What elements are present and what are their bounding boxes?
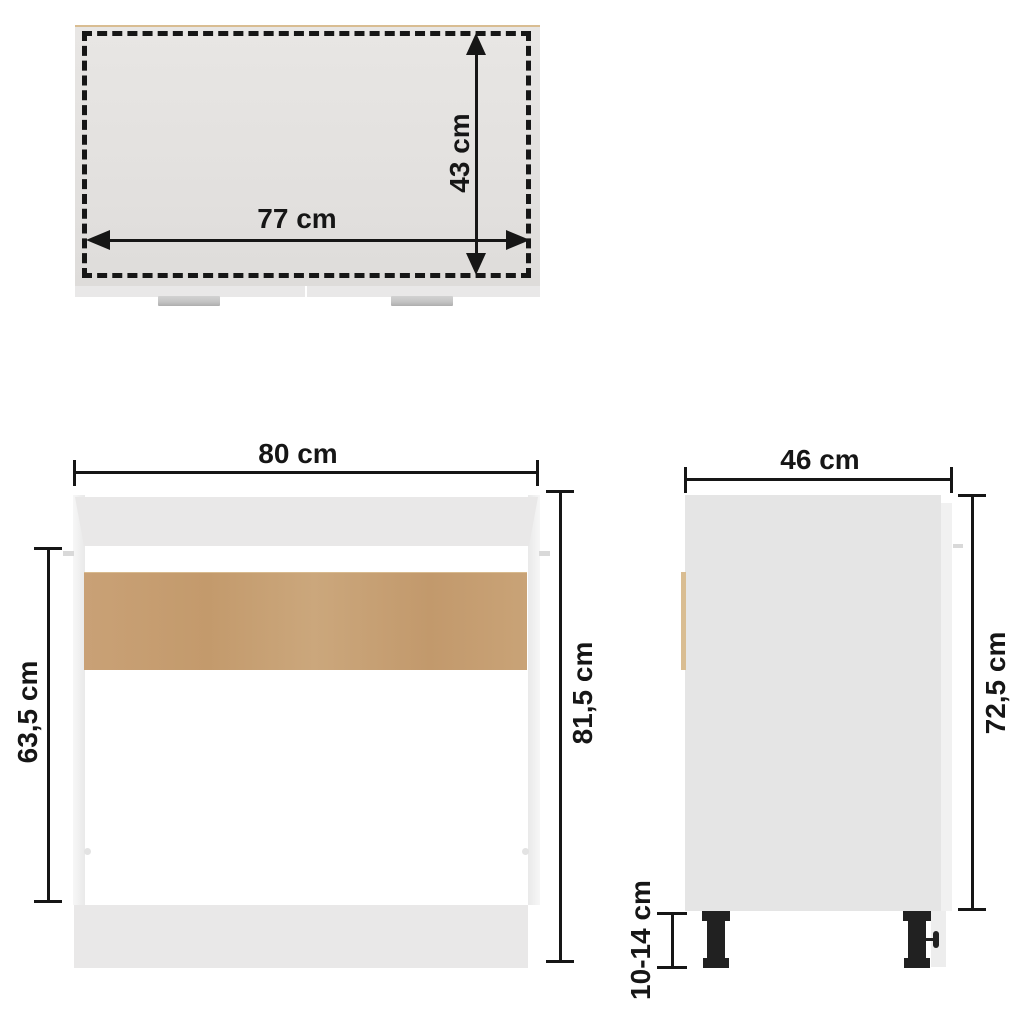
side-wood-panel-edge — [681, 572, 686, 670]
dim-front-width-line — [74, 471, 538, 474]
dim-side-height-tick-top — [958, 494, 986, 497]
front-cabinet-body — [73, 495, 540, 905]
side-cabinet-body — [685, 495, 952, 911]
dim-side-depth-tick-left — [684, 467, 687, 493]
dim-side-legs-line — [671, 914, 674, 968]
dim-side-height-label: 72,5 cm — [981, 598, 1011, 768]
side-back-edge-strip — [941, 503, 952, 911]
dim-side-legs-tick-bottom — [657, 966, 687, 969]
front-left-side-rail — [73, 495, 85, 905]
front-hinge-pin-left — [63, 551, 74, 556]
dim-side-depth-line — [686, 478, 952, 481]
dim-top-width-arrowhead-right — [506, 230, 530, 250]
dim-side-legs-label: 10-14 cm — [626, 855, 656, 1024]
dim-front-inner-height-tick-bottom — [34, 900, 62, 903]
front-plinth — [74, 905, 528, 968]
dim-top-depth-arrowhead-up — [466, 33, 486, 55]
dim-front-height-tick-bottom — [546, 960, 574, 963]
side-hinge-pin — [953, 544, 963, 548]
leg-left-stem — [707, 921, 725, 958]
dim-front-inner-height-line — [47, 549, 50, 903]
top-view-door-split — [305, 286, 307, 297]
dim-front-inner-height-label: 63,5 cm — [13, 632, 43, 792]
dim-top-width-arrowhead-left — [86, 230, 110, 250]
dim-top-depth-label: 43 cm — [445, 73, 475, 233]
top-view-front-band — [75, 286, 540, 297]
dim-front-height-tick-top — [546, 490, 574, 493]
dimension-diagram: 77 cm 43 cm 80 cm — [0, 0, 1024, 1024]
front-wood-panel — [84, 572, 527, 670]
leg-right-foot — [904, 958, 930, 968]
dim-side-height-line — [971, 496, 974, 910]
dim-front-width-tick-left — [73, 460, 76, 486]
dim-top-depth-line — [475, 50, 478, 256]
leg-left-foot — [703, 958, 729, 968]
leg-adjuster-screw-knob — [933, 931, 939, 948]
dim-side-height-tick-bottom — [958, 908, 986, 911]
dim-top-width-line — [104, 239, 510, 242]
side-top-notch — [941, 495, 952, 503]
front-right-side-rail — [528, 495, 540, 905]
leg-right-cap — [903, 911, 931, 921]
door-handle-left — [158, 296, 220, 306]
dim-front-inner-height-tick-top — [34, 547, 62, 550]
dim-side-depth-label: 46 cm — [740, 445, 900, 475]
dim-top-width-label: 77 cm — [217, 204, 377, 234]
front-shelf-pin-right — [522, 848, 529, 855]
dim-front-height-label: 81,5 cm — [568, 608, 598, 778]
front-shelf-pin-left — [84, 848, 91, 855]
dim-top-depth-arrowhead-down — [466, 253, 486, 275]
leg-right-stem — [908, 921, 926, 958]
door-handle-right — [391, 296, 453, 306]
front-top-panel — [75, 497, 538, 546]
dim-side-legs-tick-top — [657, 912, 687, 915]
dim-side-depth-tick-right — [950, 467, 953, 493]
dim-front-width-label: 80 cm — [218, 439, 378, 469]
leg-left-cap — [702, 911, 730, 921]
dim-front-width-tick-right — [536, 460, 539, 486]
front-hinge-pin-right — [539, 551, 550, 556]
dim-front-height-line — [559, 492, 562, 963]
